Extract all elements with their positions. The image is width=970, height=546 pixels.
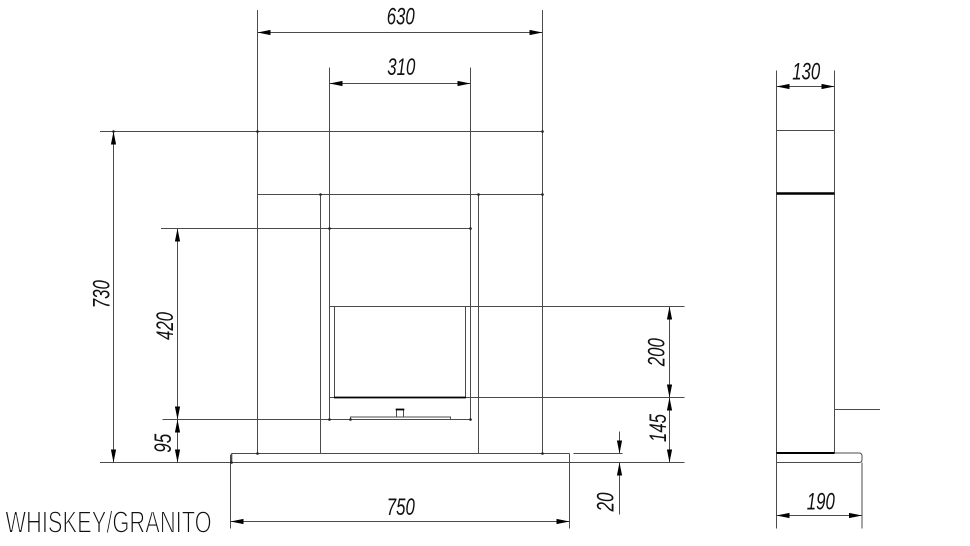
svg-text:730: 730 [89, 280, 116, 308]
svg-text:130: 130 [792, 59, 820, 86]
svg-text:200: 200 [643, 338, 670, 367]
svg-text:310: 310 [387, 54, 415, 81]
svg-text:145: 145 [645, 414, 672, 442]
svg-text:95: 95 [150, 433, 177, 452]
svg-text:20: 20 [593, 492, 620, 512]
svg-text:630: 630 [387, 4, 415, 31]
svg-text:420: 420 [152, 312, 179, 340]
svg-text:WHISKEY/GRANITO: WHISKEY/GRANITO [5, 505, 211, 540]
svg-text:750: 750 [387, 494, 415, 521]
svg-text:190: 190 [807, 488, 835, 515]
